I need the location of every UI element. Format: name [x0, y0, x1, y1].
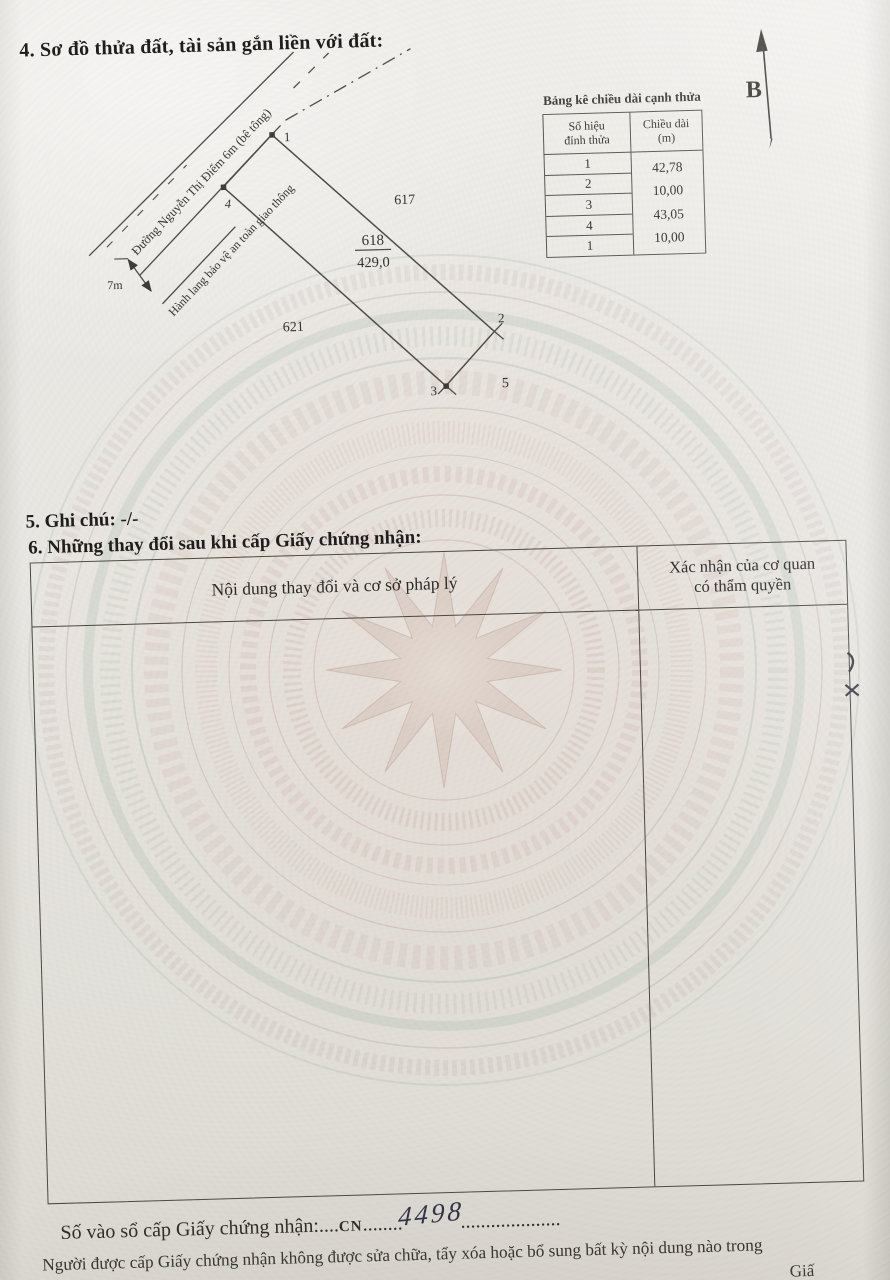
edge-length-cell: 10,00	[653, 182, 684, 199]
changes-col2-header: Xác nhận của cơ quan có thẩm quyền	[638, 541, 848, 611]
overshoot-v2a	[494, 331, 503, 339]
edge-length-cell: 10,00	[654, 230, 685, 247]
edge-table-vertex-ids: 1 2 3 4 1	[544, 153, 634, 257]
edge-table-lengths: 42,78 10,00 43,05 10,00	[631, 151, 705, 255]
vertex-label-2: 2	[498, 310, 505, 325]
road-center-dashes-top	[293, 53, 330, 88]
vertex-id-cell: 2	[545, 173, 631, 196]
changes-body-left	[32, 611, 655, 1204]
edge-length-cell: 42,78	[652, 159, 683, 176]
register-number-line: Số vào sổ cấp Giấy chứng nhận:....CN....…	[60, 1201, 561, 1246]
leader-dots: ....	[319, 1214, 340, 1237]
edge-table-col2-header: Chiều dài (m)	[630, 111, 702, 153]
vertex-id-cell: 3	[546, 194, 632, 217]
changes-table: Nội dung thay đổi và cơ sở pháp lý Xác n…	[30, 540, 865, 1205]
road-edge-dashdot	[284, 49, 413, 121]
clipped-next-line-fragment: Giấ	[789, 1261, 814, 1280]
leader-dots: ....................	[460, 1208, 561, 1233]
parcel-diagram: Đường Nguyễn Thị Điểm 6m (bê tông) Hành …	[78, 7, 569, 420]
section5-note: 5. Ghi chú: -/-	[25, 509, 139, 534]
north-label: B	[745, 77, 762, 103]
edge-table-col1-header: Số hiệu đỉnh thửa	[543, 113, 631, 155]
neighbor-5: 5	[502, 376, 509, 391]
handwritten-register-number: 4498	[398, 1195, 465, 1233]
vertex-id-cell: 1	[547, 235, 633, 257]
neighbor-617: 617	[394, 193, 415, 209]
register-label: Số vào sổ cấp Giấy chứng nhận:	[60, 1215, 319, 1244]
parcel-number: 618	[361, 233, 384, 250]
register-code: CN	[339, 1219, 363, 1236]
north-arrow-icon: B	[735, 20, 799, 157]
edge-length-cell: 43,05	[653, 206, 684, 223]
vertex-id-cell: 4	[546, 214, 632, 237]
fraction-line	[355, 249, 391, 250]
vertex-label-4: 4	[225, 197, 232, 211]
changes-body-right	[639, 605, 863, 1187]
dim-arrow-7m	[128, 259, 151, 292]
scanned-certificate-page: 4. Sơ đồ thửa đất, tài sản gắn liền với …	[0, 0, 890, 1280]
edge-length-table: Bảng kê chiều dài cạnh thửa Số hiệu đỉnh…	[533, 88, 716, 258]
dim-label-7m: 7m	[107, 278, 123, 292]
parcel-area: 429,0	[357, 254, 390, 271]
vertex-label-1: 1	[284, 129, 291, 144]
vertex-label-3: 3	[430, 383, 437, 398]
ink-marks	[838, 648, 866, 705]
vertex-id-cell: 1	[544, 153, 630, 176]
neighbor-621: 621	[283, 320, 304, 336]
